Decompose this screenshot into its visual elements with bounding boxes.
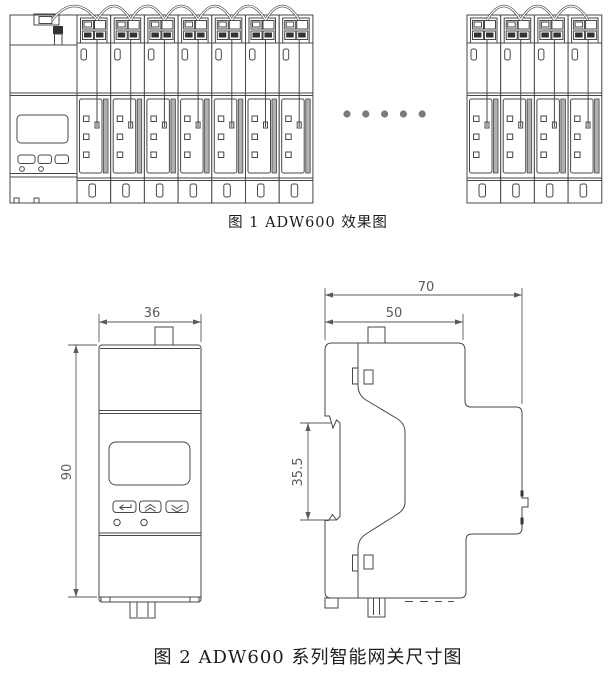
ellipsis-dot bbox=[362, 110, 369, 117]
dim-upper-depth-label: 50 bbox=[386, 306, 403, 321]
gateway-unit bbox=[10, 14, 77, 203]
antenna-stub bbox=[155, 327, 173, 345]
ellipsis-dots bbox=[343, 110, 425, 117]
meter-module bbox=[279, 15, 313, 203]
dim-width-label: 36 bbox=[144, 306, 161, 321]
ellipsis-dot bbox=[381, 110, 388, 117]
din-clip-tab bbox=[130, 602, 155, 618]
front-view bbox=[99, 327, 201, 618]
ellipsis-dot bbox=[400, 110, 407, 117]
manual-page: 36 90 bbox=[0, 0, 616, 681]
technical-drawing: 36 90 bbox=[0, 0, 616, 681]
ellipsis-dot bbox=[419, 110, 426, 117]
dim-rail-label: 35.5 bbox=[291, 458, 306, 487]
meter-module bbox=[467, 15, 501, 203]
meter-module bbox=[77, 15, 111, 203]
ellipsis-dot bbox=[343, 110, 350, 117]
comm-connector bbox=[53, 26, 63, 34]
meter-module bbox=[501, 15, 535, 203]
figure2-dimension-drawing: 36 90 bbox=[60, 280, 528, 618]
meter-module bbox=[111, 15, 145, 203]
figure1-caption: 图 1 ADW600 效果图 bbox=[0, 211, 616, 232]
antenna-stub bbox=[368, 327, 385, 343]
dim-depth-label: 70 bbox=[418, 280, 435, 295]
side-view bbox=[325, 327, 528, 617]
right-module-group bbox=[467, 15, 602, 203]
meter-module bbox=[568, 15, 602, 203]
figure2-caption: 图 2 ADW600 系列智能网关尺寸图 bbox=[0, 643, 616, 669]
dim-height-label: 90 bbox=[60, 464, 75, 481]
figure1-assembly bbox=[10, 6, 602, 203]
meter-module bbox=[212, 15, 246, 203]
meter-module bbox=[534, 15, 568, 203]
meter-module bbox=[246, 15, 280, 203]
meter-module bbox=[178, 15, 212, 203]
din-clip-tab bbox=[368, 598, 385, 617]
meter-module bbox=[144, 15, 178, 203]
left-module-group bbox=[77, 15, 313, 203]
